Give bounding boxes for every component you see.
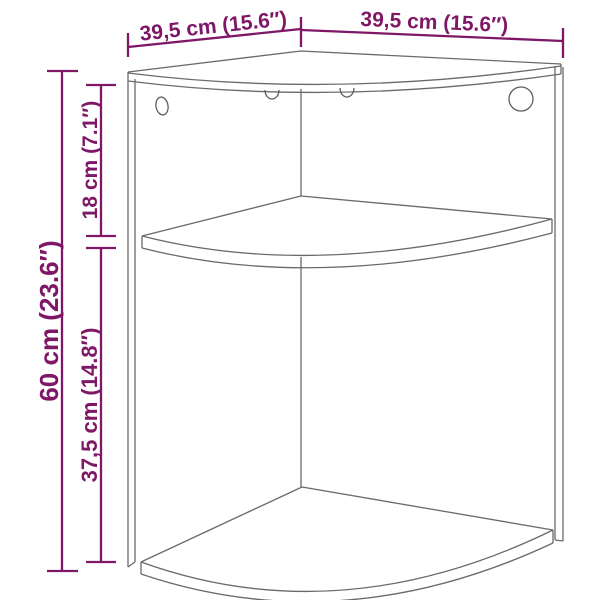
bottom-panel-front-top-curve	[141, 530, 553, 591]
bottom-panel-left-edge	[141, 487, 302, 562]
product-dimension-diagram: 39,5 cm (15.6″) 39,5 cm (15.6″) 60 cm (2…	[0, 0, 600, 600]
dimension-top-left-width: 39,5 cm (15.6″)	[128, 7, 301, 57]
top-panel-front-bottom-curve	[128, 74, 561, 92]
dimension-label-top-left: 39,5 cm (15.6″)	[139, 7, 288, 45]
right-panel-bottom-edge	[555, 540, 563, 541]
top-panel-back-edge	[128, 51, 561, 72]
cabinet-left-side-panel	[128, 72, 135, 567]
cabinet-top-panel	[128, 51, 561, 92]
bottom-panel-right-edge	[302, 487, 553, 530]
middle-shelf-right-edge	[301, 196, 552, 219]
dimension-total-height: 60 cm (23.6″)	[34, 71, 78, 571]
middle-shelf-left-edge	[142, 196, 301, 236]
cabinet-drawing	[128, 51, 563, 600]
dimension-label-total-height: 60 cm (23.6″)	[34, 240, 64, 401]
middle-shelf-front-top-curve	[142, 219, 552, 255]
dimension-label-lower-section: 37,5 cm (14.8″)	[77, 328, 102, 483]
middle-shelf-front-bottom-curve	[142, 233, 552, 268]
cabinet-middle-shelf	[142, 196, 552, 268]
bottom-panel-front-bottom-curve	[141, 543, 553, 600]
dimension-top-right-width: 39,5 cm (15.6″)	[301, 8, 563, 58]
cabinet-right-side-panel	[555, 66, 563, 541]
mounting-hole-right-icon	[509, 87, 533, 111]
dimension-lower-section: 37,5 cm (14.8″)	[77, 248, 116, 562]
diagram-canvas: 39,5 cm (15.6″) 39,5 cm (15.6″) 60 cm (2…	[0, 0, 600, 600]
mounting-holes	[155, 87, 533, 116]
cabinet-bottom-panel	[141, 487, 553, 600]
dimension-upper-section: 18 cm (7.1″)	[79, 85, 116, 236]
mounting-hole-left-icon	[155, 96, 170, 116]
left-panel-bottom-edge	[128, 562, 135, 567]
dimension-label-upper-section: 18 cm (7.1″)	[79, 101, 102, 220]
